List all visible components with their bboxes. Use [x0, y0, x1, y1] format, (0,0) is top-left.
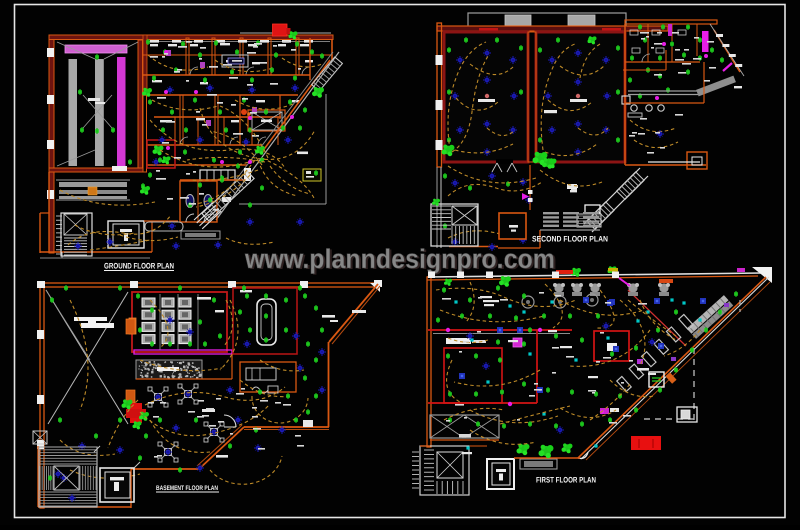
svg-text:SECOND FLOOR PLAN: SECOND FLOOR PLAN: [532, 235, 608, 244]
svg-text:GROUND FLOOR PLAN: GROUND FLOOR PLAN: [104, 262, 174, 271]
svg-text:BASEMENT FLOOR PLAN: BASEMENT FLOOR PLAN: [156, 485, 218, 492]
svg-text:FIRST FLOOR PLAN: FIRST FLOOR PLAN: [536, 476, 596, 485]
svg-text:www.planndesignpro.com: www.planndesignpro.com: [244, 244, 555, 274]
